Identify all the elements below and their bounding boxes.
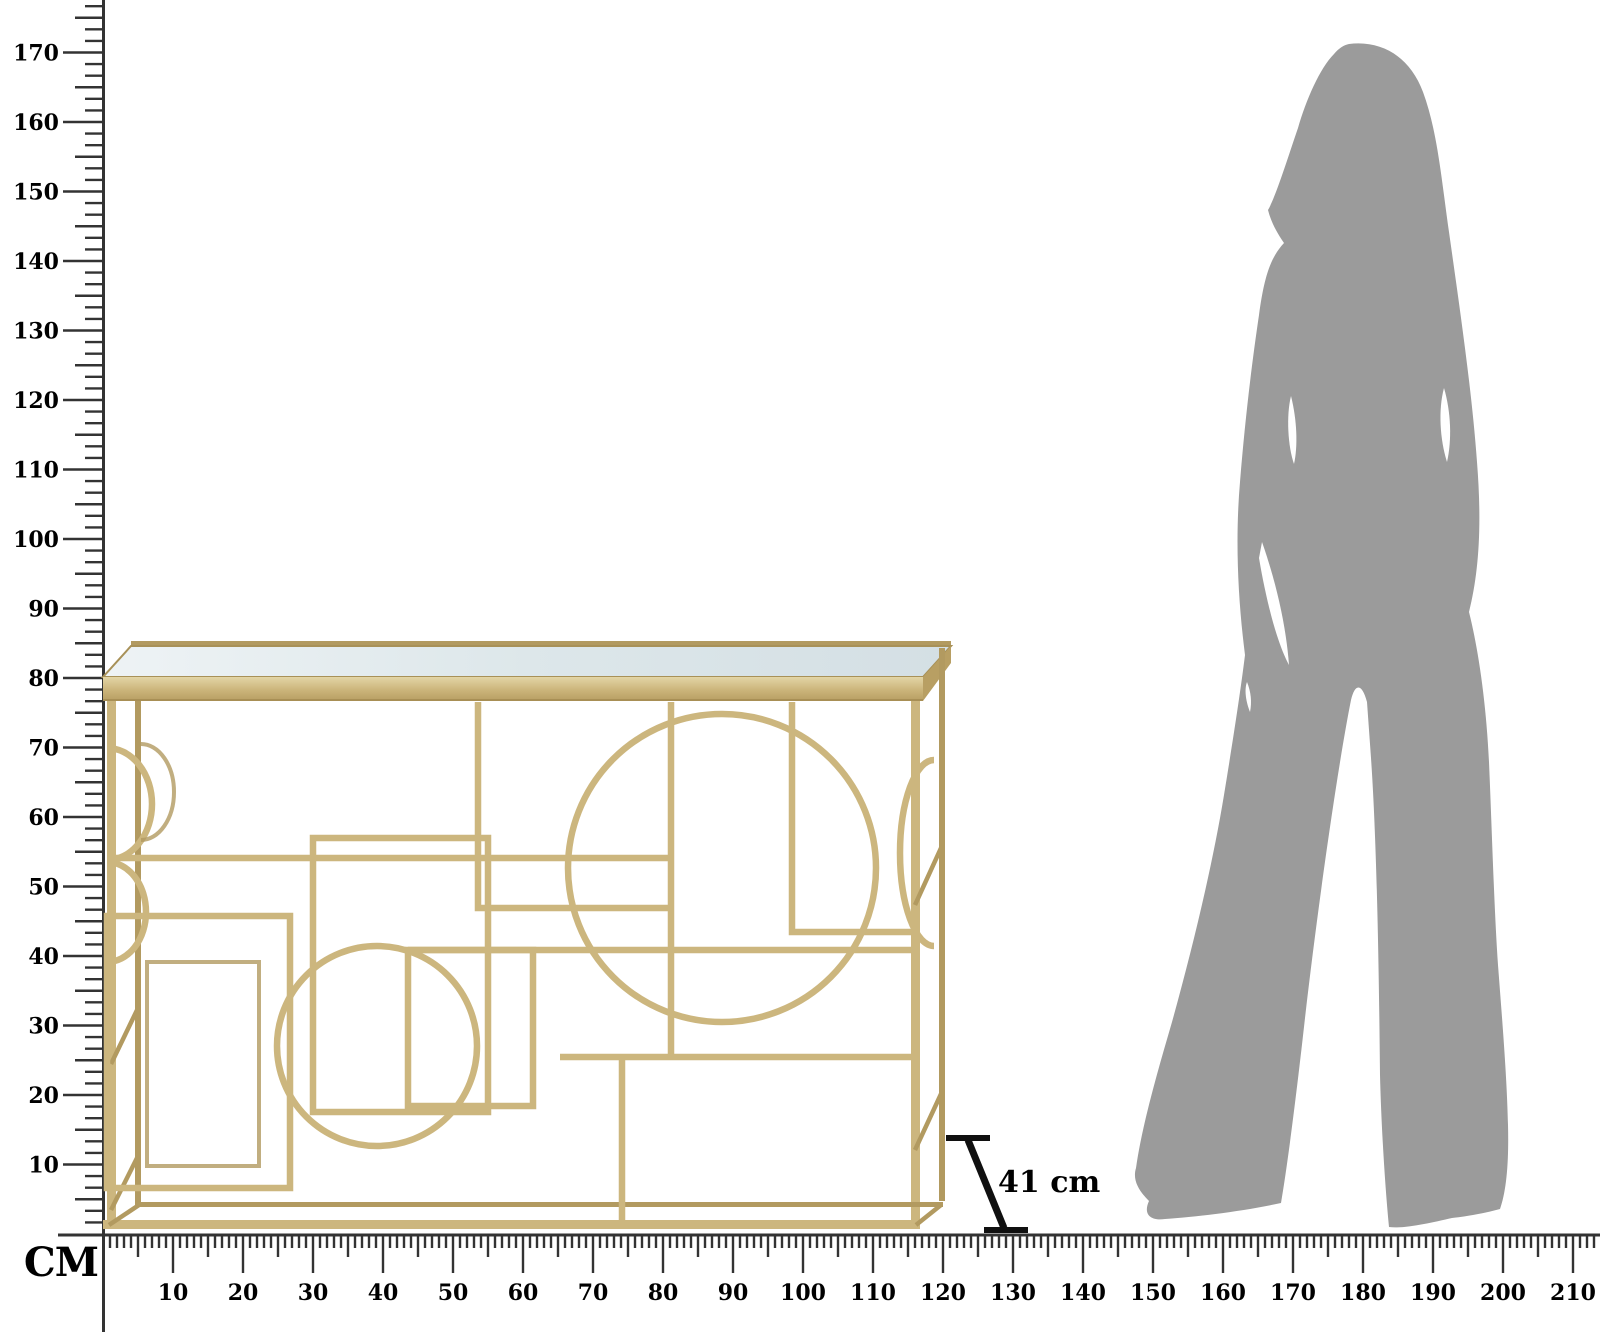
v-ruler-number: 100	[13, 527, 59, 553]
v-ruler-number: 90	[28, 597, 59, 623]
tabletop-mirror	[103, 646, 951, 677]
side-panel-braces	[109, 848, 941, 1225]
silhouette-body	[1135, 43, 1508, 1227]
bottom-right-square	[560, 1057, 920, 1221]
v-ruler-number: 80	[28, 666, 59, 692]
v-ruler-number: 70	[28, 736, 59, 762]
h-ruler-number: 150	[1130, 1280, 1176, 1306]
depth-dimension-marker: 41 cm	[946, 1138, 1100, 1230]
h-ruler-number: 100	[780, 1280, 826, 1306]
v-ruler-number: 10	[28, 1153, 59, 1179]
v-ruler-number: 160	[13, 110, 59, 136]
h-ruler-number: 200	[1480, 1280, 1526, 1306]
h-ruler-number: 210	[1550, 1280, 1596, 1306]
v-ruler-number: 130	[13, 319, 59, 345]
h-ruler-number: 120	[920, 1280, 966, 1306]
geometric-decor	[107, 702, 934, 1221]
v-ruler-number: 140	[13, 249, 59, 275]
ruler-horizontal: 1020304050607080901001101201301401501601…	[58, 1235, 1600, 1306]
back-left-leg	[135, 701, 141, 1204]
horizontal-ruler-ticks	[110, 1235, 1594, 1273]
back-right-leg	[939, 648, 945, 1201]
h-ruler-number: 110	[850, 1280, 896, 1306]
h-ruler-number: 170	[1270, 1280, 1316, 1306]
v-ruler-number: 150	[13, 180, 59, 206]
v-ruler-number: 30	[28, 1014, 59, 1040]
v-ruler-number: 120	[13, 388, 59, 414]
v-ruler-number: 50	[28, 875, 59, 901]
human-silhouette	[1135, 43, 1508, 1227]
h-ruler-number: 60	[508, 1280, 539, 1306]
medium-circle	[277, 946, 477, 1146]
tabletop-apron	[103, 677, 923, 701]
h-ruler-number: 40	[368, 1280, 399, 1306]
bottom-front-rail	[103, 1220, 920, 1229]
unit-label: CM	[24, 1239, 98, 1286]
top-right-rectangle	[792, 702, 911, 932]
h-ruler-number: 20	[228, 1280, 259, 1306]
h-ruler-number: 70	[578, 1280, 609, 1306]
dimension-diagram: 1020304050607080901001101201301401501601…	[0, 0, 1600, 1336]
ruler-vertical: 1020304050607080901001101201301401501601…	[13, 0, 103, 1332]
horizontal-ruler-labels: 1020304050607080901001101201301401501601…	[158, 1280, 1596, 1306]
middle-square	[313, 838, 488, 1112]
h-ruler-number: 190	[1410, 1280, 1456, 1306]
h-ruler-number: 160	[1200, 1280, 1246, 1306]
v-ruler-number: 110	[13, 458, 59, 484]
h-ruler-number: 10	[158, 1280, 189, 1306]
h-ruler-number: 180	[1340, 1280, 1386, 1306]
large-circle	[568, 714, 876, 1022]
h-ruler-number: 30	[298, 1280, 329, 1306]
v-ruler-number: 20	[28, 1083, 59, 1109]
product-console-table	[103, 643, 951, 1229]
v-ruler-number: 40	[28, 944, 59, 970]
table-frame	[103, 648, 945, 1229]
v-ruler-number: 170	[13, 41, 59, 67]
h-ruler-number: 80	[648, 1280, 679, 1306]
depth-dimension-label: 41 cm	[998, 1165, 1100, 1200]
h-ruler-number: 130	[990, 1280, 1036, 1306]
vertical-ruler-ticks	[63, 6, 103, 1222]
h-ruler-number: 50	[438, 1280, 469, 1306]
left-rectangle-echo	[147, 962, 259, 1166]
v-ruler-number: 60	[28, 805, 59, 831]
vertical-ruler-labels: 1020304050607080901001101201301401501601…	[13, 41, 59, 1179]
h-ruler-number: 90	[718, 1280, 749, 1306]
bottom-back-rail	[135, 1202, 943, 1207]
h-ruler-number: 140	[1060, 1280, 1106, 1306]
left-rectangle	[107, 916, 290, 1188]
